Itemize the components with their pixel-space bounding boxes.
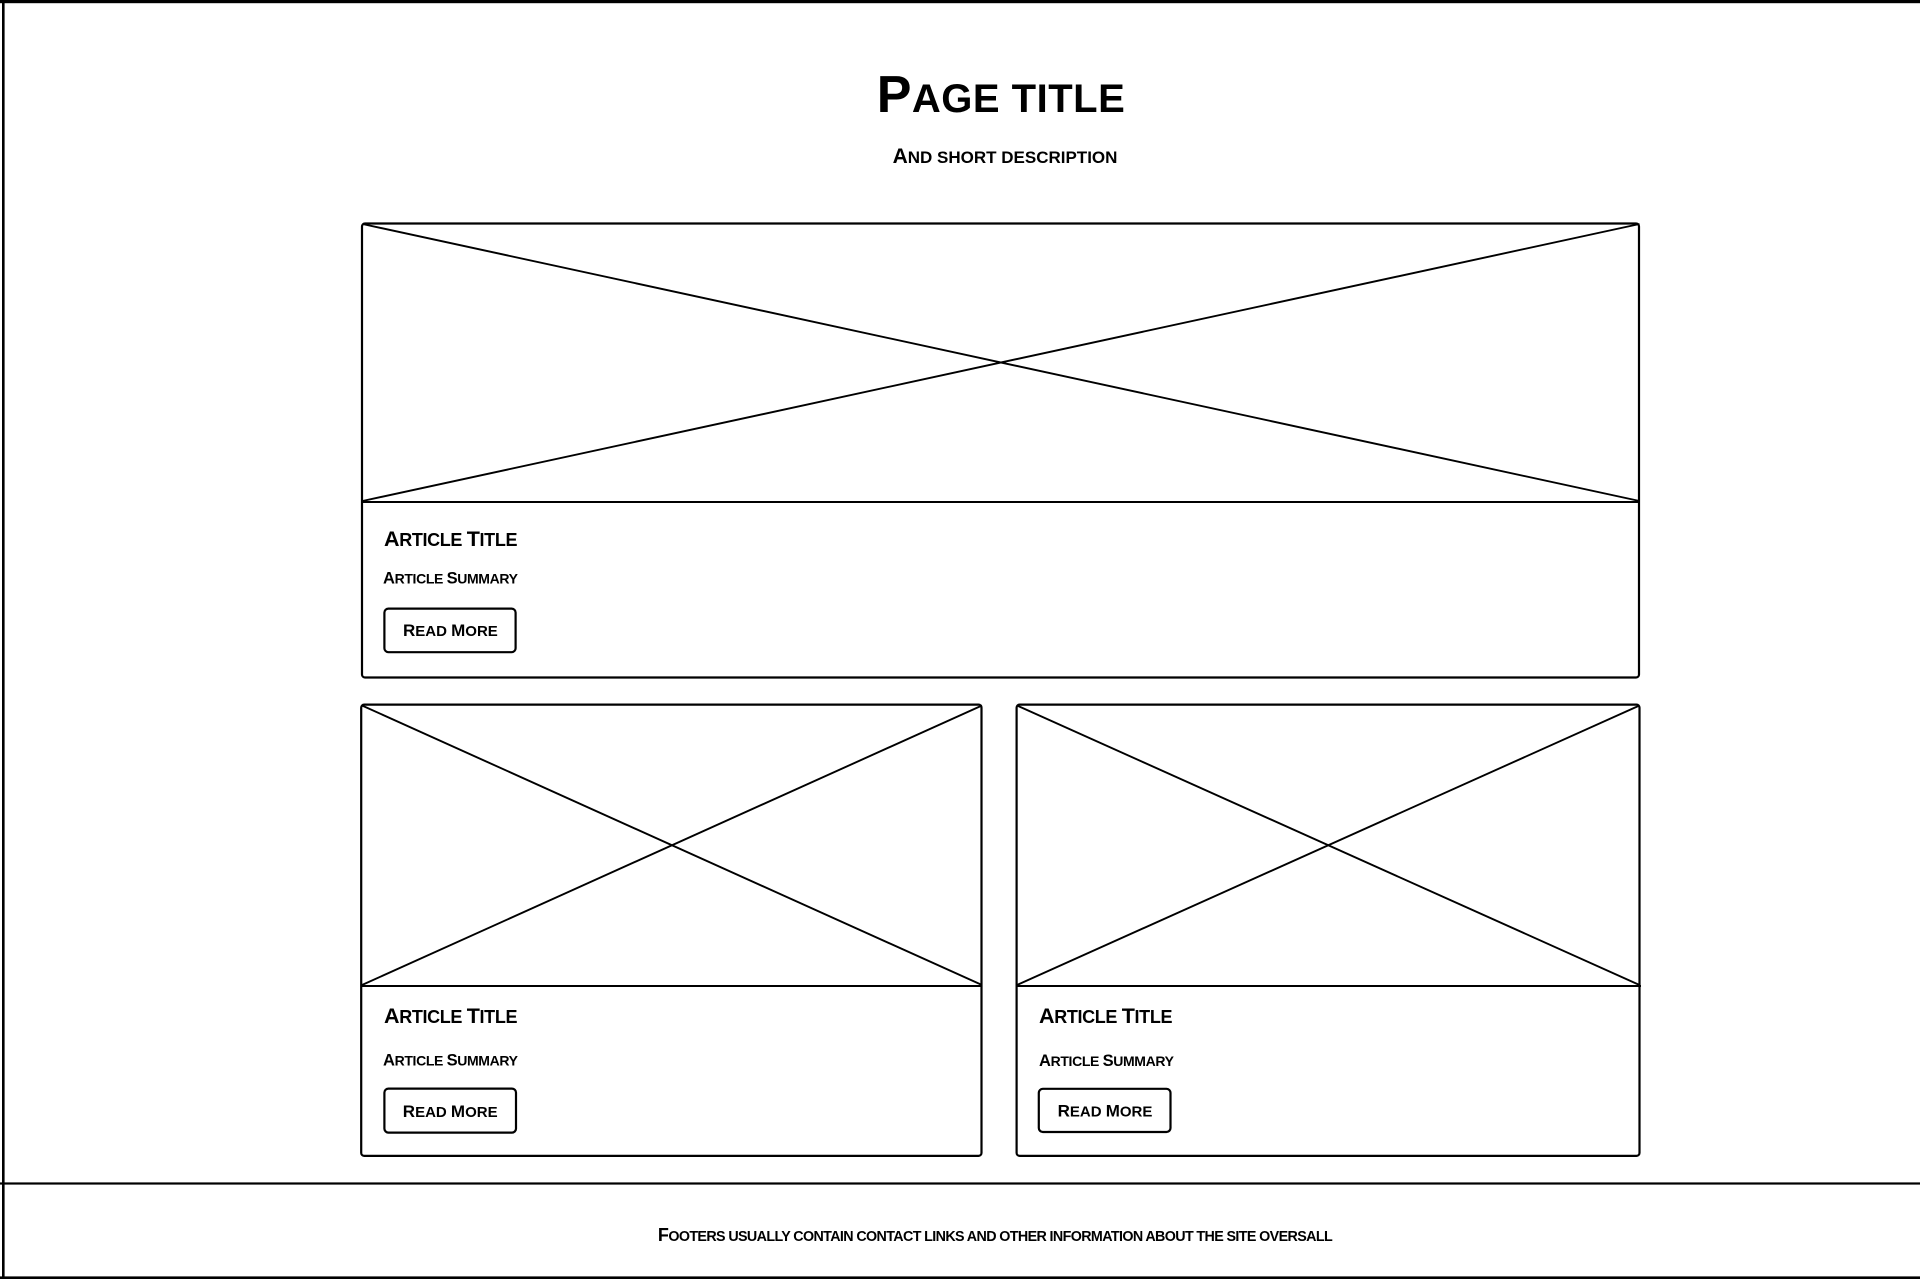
svg-text:READ MORE: READ MORE [403,621,498,640]
svg-text:ARTICLE TITLE: ARTICLE TITLE [384,527,517,551]
svg-text:READ MORE: READ MORE [403,1102,498,1121]
svg-text:READ MORE: READ MORE [1058,1102,1153,1121]
svg-text:ARTICLE TITLE: ARTICLE TITLE [1039,1004,1172,1028]
svg-text:ARTICLE SUMMARY: ARTICLE SUMMARY [1039,1052,1175,1070]
svg-text:AND SHORT DESCRIPTION: AND SHORT DESCRIPTION [893,145,1118,168]
svg-text:ARTICLE SUMMARY: ARTICLE SUMMARY [383,1052,519,1070]
svg-text:ARTICLE SUMMARY: ARTICLE SUMMARY [383,570,519,588]
svg-text:ARTICLE TITLE: ARTICLE TITLE [384,1004,517,1028]
